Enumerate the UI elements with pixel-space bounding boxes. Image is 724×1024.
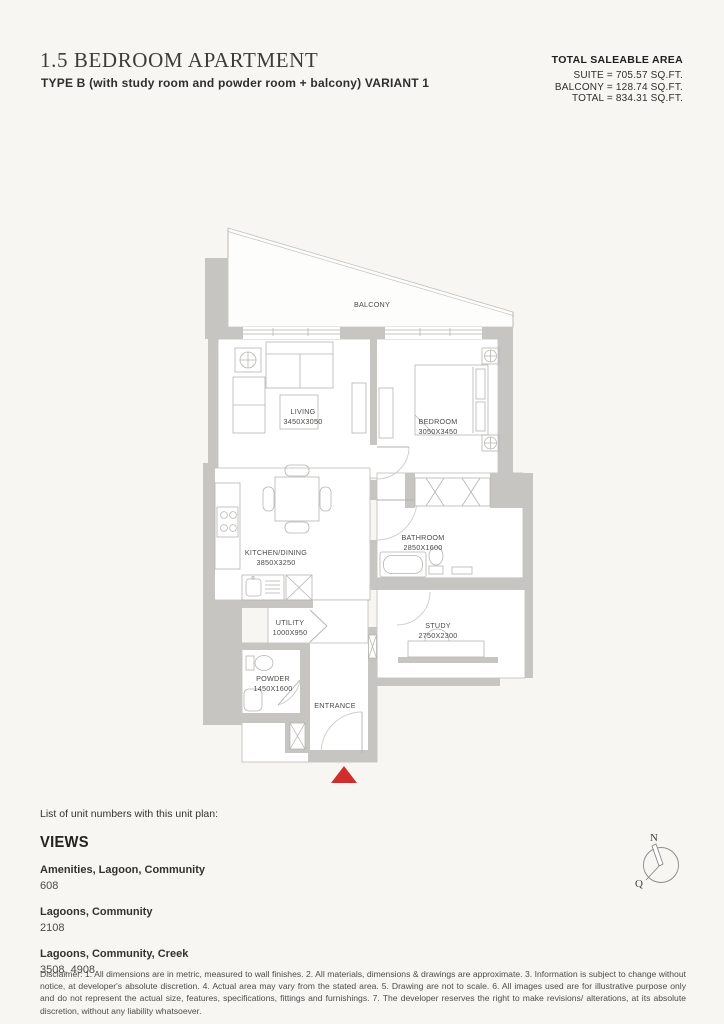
saleable-area-summary: TOTAL SALEABLE AREA SUITE = 705.57 SQ.FT… xyxy=(552,54,683,105)
label-study-dims: 2750X2300 xyxy=(418,631,457,640)
view-group: Amenities, Lagoon, Community 608 xyxy=(40,864,218,892)
label-bedroom: BEDROOM xyxy=(419,417,458,426)
view-units: 2108 xyxy=(40,922,218,934)
view-name: Amenities, Lagoon, Community xyxy=(40,864,218,876)
view-units: 608 xyxy=(40,880,218,892)
label-living-dims: 3450X3050 xyxy=(283,417,322,426)
entrance-marker xyxy=(331,766,357,783)
compass-icon: N Q xyxy=(626,830,700,900)
label-entrance: ENTRANCE xyxy=(314,701,356,710)
label-study: STUDY xyxy=(425,621,451,630)
area-total: TOTAL = 834.31 SQ.FT. xyxy=(552,93,683,105)
label-powder-dims: 1450X1600 xyxy=(253,684,292,693)
unit-list-section: List of unit numbers with this unit plan… xyxy=(40,808,218,990)
disclaimer-text: Disclaimer: 1. All dimensions are in met… xyxy=(40,968,686,1017)
area-heading: TOTAL SALEABLE AREA xyxy=(552,54,683,66)
label-kitchen-dims: 3850X3250 xyxy=(256,558,295,567)
area-suite: SUITE = 705.57 SQ.FT. xyxy=(552,70,683,82)
compass: N Q xyxy=(626,830,700,905)
brochure-page: 1.5 BEDROOM APARTMENT TYPE B (with study… xyxy=(0,0,724,1024)
views-heading: VIEWS xyxy=(40,834,204,852)
label-bedroom-dims: 3050X3450 xyxy=(418,427,457,436)
page-title: 1.5 BEDROOM APARTMENT xyxy=(40,48,318,73)
label-bathroom: BATHROOM xyxy=(402,533,445,542)
view-name: Lagoons, Community, Creek xyxy=(40,948,218,960)
page-subtitle: TYPE B (with study room and powder room … xyxy=(41,76,429,90)
label-bathroom-dims: 2850X1600 xyxy=(403,543,442,552)
floor-plan-svg: BALCONY LIVING 3450X3050 BEDROOM 3050X34… xyxy=(180,215,540,795)
view-group: Lagoons, Community 2108 xyxy=(40,906,218,934)
label-utility: UTILITY xyxy=(276,618,305,627)
label-living: LIVING xyxy=(290,407,315,416)
balcony-outline xyxy=(228,228,513,327)
floor-plan: BALCONY LIVING 3450X3050 BEDROOM 3050X34… xyxy=(180,215,540,800)
compass-north-label: N xyxy=(650,832,658,844)
view-name: Lagoons, Community xyxy=(40,906,218,918)
label-powder: POWDER xyxy=(256,674,290,683)
area-balcony: BALCONY = 128.74 SQ.FT. xyxy=(552,82,683,94)
label-utility-dims: 1000X950 xyxy=(273,628,308,637)
label-kitchen: KITCHEN/DINING xyxy=(245,548,307,557)
wardrobe xyxy=(415,478,490,506)
unit-list-intro: List of unit numbers with this unit plan… xyxy=(40,808,218,820)
compass-q-label: Q xyxy=(635,878,643,890)
label-balcony: BALCONY xyxy=(354,300,390,309)
